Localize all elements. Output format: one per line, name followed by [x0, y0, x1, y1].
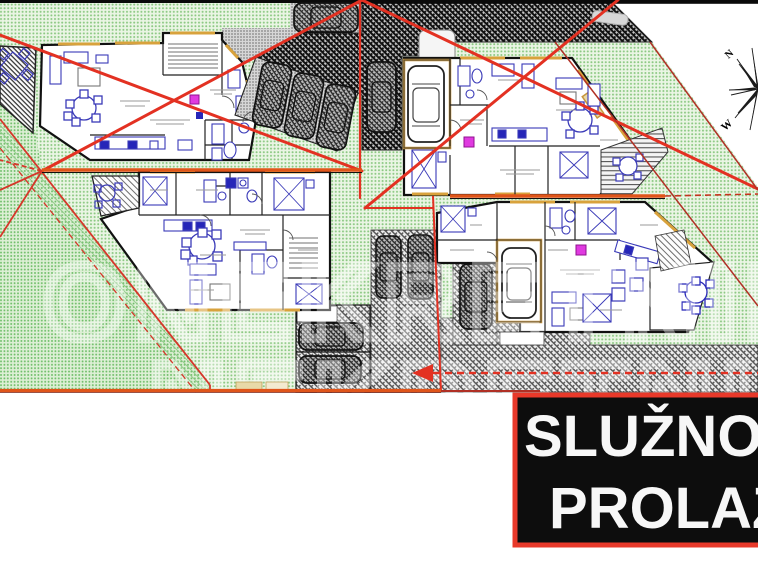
svg-text:PROLAZA: PROLAZA [549, 476, 758, 541]
svg-text:SLUŽNOST: SLUŽNOST [524, 404, 758, 469]
